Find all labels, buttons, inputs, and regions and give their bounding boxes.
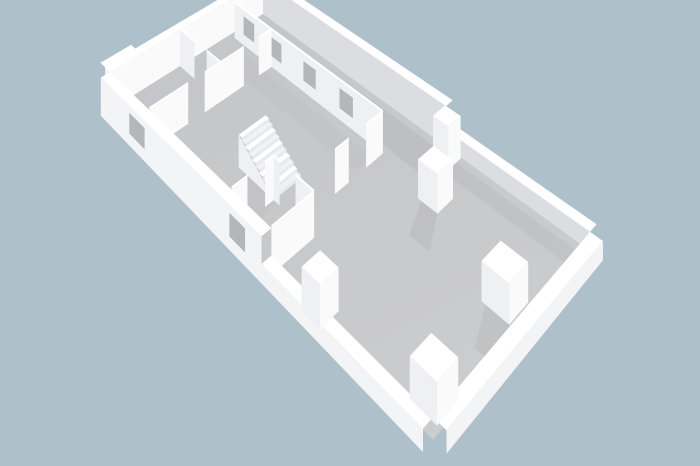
- app-window: [0, 0, 700, 466]
- floorplan-3d-viewport[interactable]: [0, 0, 700, 466]
